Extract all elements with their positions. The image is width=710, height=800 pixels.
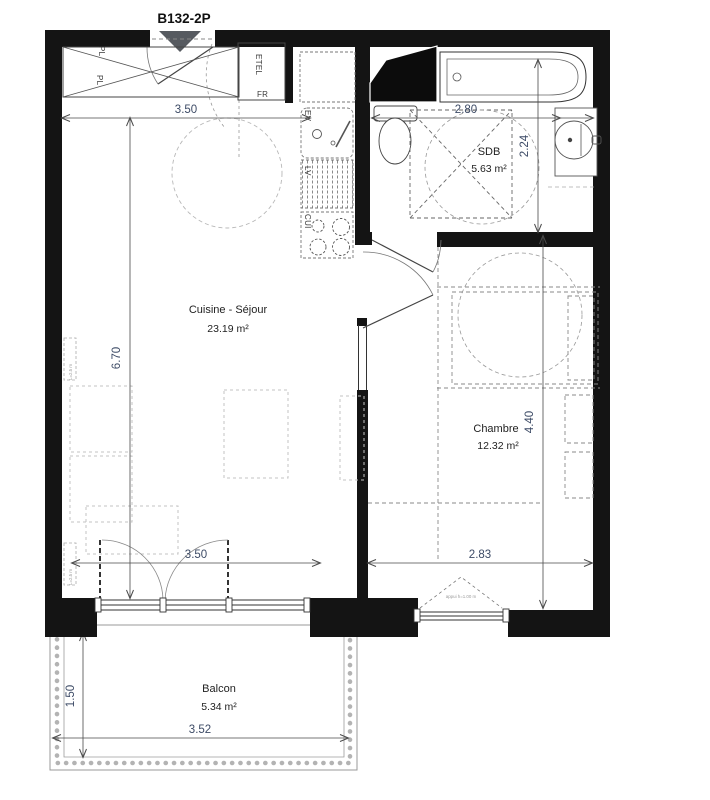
wall-bathroom-bedroom: [437, 232, 610, 247]
living-furniture: [70, 386, 364, 554]
french-door-arc-left: [102, 540, 163, 600]
sink-faucet-knob-icon: [331, 141, 335, 145]
sink-drain-icon: [313, 130, 322, 139]
closet-label-1: PL: [97, 46, 106, 57]
bedroom-area: 12.32 m²: [477, 440, 519, 452]
dim-bathroom-length: 2.24: [519, 134, 531, 157]
burner-1: [312, 220, 324, 232]
bathroom-area: 5.63 m²: [471, 163, 507, 175]
bedroom-door-leaf: [363, 295, 433, 328]
balcony-width-dim: 3.52: [189, 724, 211, 736]
wall-kitchen-bathroom: [355, 45, 370, 235]
balcony-label: Balcon: [202, 683, 236, 695]
wall-stub-etel: [285, 43, 293, 103]
bed-pillow-icon: [568, 296, 594, 380]
dishwasher-label: LV: [303, 166, 312, 176]
nightstand-icon-2: [565, 452, 593, 498]
technical-duct: [370, 46, 437, 102]
burner-3: [310, 239, 326, 255]
radiator-note-1: L=2.5 m: [68, 364, 73, 380]
bedroom-turning-circle: [458, 253, 582, 377]
dim-living-length: 6.70: [111, 347, 123, 369]
sink-label: EV: [303, 110, 312, 122]
sink-faucet-icon: [336, 121, 350, 147]
dim-bathroom-width: 2.80: [455, 104, 477, 116]
balcony-area: 5.34 m²: [201, 701, 237, 713]
wall-stub-bedroom-door: [357, 318, 367, 326]
sideboard-icon: [86, 506, 178, 554]
table-icon: [224, 390, 288, 478]
dimensions: [62, 60, 593, 608]
bathroom-door-leaf: [372, 240, 433, 272]
dim-living-width-bottom: 3.50: [185, 549, 207, 561]
fridge-label: FR: [257, 90, 268, 99]
living-area: 23.19 m²: [207, 323, 249, 335]
fridge-icon: [300, 52, 355, 102]
wall-living-bedroom: [357, 390, 368, 602]
bedroom-furniture: [368, 247, 600, 560]
entry-door-leaf: [158, 47, 213, 84]
living-window: [95, 598, 310, 612]
partition-lines: [359, 325, 367, 390]
bathroom-label: SDB: [478, 146, 501, 158]
burner-2: [333, 219, 350, 236]
etel-door-dashed-arc: [206, 44, 225, 128]
etel-label: ETEL: [254, 54, 263, 75]
bathtub-icon: [440, 52, 586, 102]
bedroom-label: Chambre: [473, 423, 518, 435]
dim-bedroom-length: 4.40: [524, 411, 536, 433]
living-turning-circle: [172, 118, 282, 228]
window-sill-note: appui h=1.00 m: [446, 594, 477, 599]
sofa-icon-2: [70, 456, 132, 522]
bedroom-door-arc: [363, 252, 433, 295]
dim-bedroom-width: 2.83: [469, 549, 491, 561]
closet-label-2: PL: [95, 75, 104, 86]
dim-living-width-top: 3.50: [175, 104, 197, 116]
toilet-bowl-icon: [379, 118, 411, 164]
wall-bottom-center: [310, 598, 418, 637]
radiator-note-2: L=2.5 m: [68, 569, 73, 585]
balcony: Balcon 5.34 m² 3.52 1.50: [50, 625, 357, 770]
washbasin-drain-icon: [568, 138, 572, 142]
bedroom-window: [414, 609, 509, 622]
living-label: Cuisine - Séjour: [189, 304, 268, 316]
nightstand-icon-1: [565, 395, 593, 443]
sofa-icon-1: [70, 386, 132, 452]
bed-icon: [452, 292, 598, 384]
unit-title: B132-2P: [157, 11, 210, 26]
kitchen: FR EV LV CUI: [257, 52, 355, 258]
wall-top-right: [215, 30, 610, 47]
bedroom: Chambre 12.32 m² appui h=1.00 m: [363, 247, 600, 622]
balcony-depth-dim: 1.50: [65, 685, 77, 707]
entry-direction-marker: [159, 31, 201, 52]
burner-4: [333, 239, 350, 256]
floor-plan-page: Balcon 5.34 m² 3.52 1.50 B132-2P: [0, 0, 710, 800]
wall-stub-junction: [355, 232, 372, 245]
cooktop-label: CUI: [303, 214, 312, 229]
closet-pl: PL PL: [63, 46, 239, 160]
wall-bottom-left-corner: [45, 598, 97, 637]
balcony-outline: [50, 625, 357, 770]
entry-door-arc: [147, 47, 158, 84]
wall-left: [45, 30, 62, 605]
floor-plan-drawing: Balcon 5.34 m² 3.52 1.50 B132-2P: [0, 0, 710, 800]
bedroom-window-opening-symbol: [420, 577, 502, 608]
